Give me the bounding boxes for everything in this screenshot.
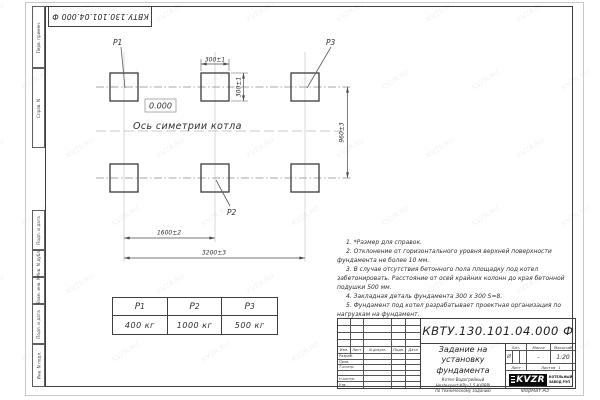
- company-logo-cell: KVZR КОТЕЛЬНЫЙ ЗАВОД РЭП: [506, 371, 575, 388]
- notes-block: 1. *Размер для справок. 2. Отклонение от…: [337, 238, 568, 319]
- column-axis-lines: [124, 52, 305, 262]
- title-block: Изм. Лист N докум. Подп. Дата Разраб. Пр…: [337, 318, 576, 389]
- note-5: 5. Фундамент под котел разрабатывает про…: [337, 301, 568, 319]
- lit-label: Лит.: [506, 344, 527, 350]
- top-stamp: КВТУ.130.101.04.000 Ф: [48, 6, 152, 27]
- foundation-plan: 300±1 300±1 960±3 1600±2 3200±3 P1 P3 P2…: [45, 28, 367, 274]
- mass-value: -: [527, 351, 551, 363]
- title-block-info: Лит. Масса Масштаб И - 1:20 Лист Листов1: [506, 344, 575, 388]
- frame-cell-vzam-inv: Взам. инв. N: [32, 277, 45, 304]
- sheet-label: Лист: [506, 364, 527, 370]
- lit-value: И: [506, 351, 513, 363]
- load-table: P1 P2 P3 400 кг 1000 кг 500 кг: [112, 297, 278, 335]
- company-name: КОТЕЛЬНЫЙ ЗАВОД РЭП: [549, 375, 572, 383]
- note-2: 2. Отклонение от горизонтального уровня …: [337, 247, 568, 265]
- load-value-p2: 1000 кг: [168, 316, 223, 334]
- kvzr-logo: KVZR: [509, 374, 547, 386]
- dim-col-spacing: 1600±2: [157, 230, 181, 237]
- scale-label: Масштаб: [551, 344, 575, 350]
- load-value-p3: 500 кг: [222, 316, 277, 334]
- mass-label: Масса: [527, 344, 551, 350]
- logo-stripes-icon: [511, 376, 515, 384]
- dim-row-spacing: 960±3: [339, 122, 346, 142]
- frame-cell-sprav-n: Справ. N: [32, 68, 45, 148]
- symmetry-axis-caption: Ось симетрии котла: [133, 121, 242, 132]
- frame-cell-podp-data-1: Подп. и дата: [32, 210, 45, 250]
- scale-value: 1:20: [551, 351, 575, 363]
- note-3: 3. В случае отсутствия бетонного пола пл…: [337, 265, 568, 292]
- frame-cell-perv-primen: Перв. примен.: [32, 6, 45, 68]
- load-table-header-p1: P1: [113, 298, 168, 316]
- dim-pad-width: 300±1: [205, 57, 225, 64]
- format-label: Формат А3: [495, 388, 575, 394]
- foundation-pads: [110, 73, 319, 192]
- doc-title: Задание на установку фундамента: [421, 345, 505, 376]
- doc-subtitle: Котел Водогрейный Heatexpert-КВр-1,5-К(Р…: [421, 377, 505, 393]
- drawing-sheet: KVZR.RUKVZR.RUKVZR.RUKVZR.RUKVZR.RUKVZR.…: [0, 0, 600, 400]
- elevation-value: 0.000: [149, 102, 172, 111]
- approval-header-row: Изм. Лист N докум. Подп. Дата: [338, 347, 420, 354]
- load-table-header-p3: P3: [222, 298, 277, 316]
- load-table-header-p2: P2: [168, 298, 223, 316]
- top-stamp-number: КВТУ.130.101.04.000 Ф: [52, 12, 149, 21]
- sheets-total: Листов1: [527, 364, 575, 370]
- load-value-p1: 400 кг: [113, 316, 168, 334]
- title-block-approval-table: Изм. Лист N докум. Подп. Дата Разраб. Пр…: [338, 319, 421, 388]
- note-1: 1. *Размер для справок.: [337, 238, 568, 247]
- dim-pad-height: 300±1: [236, 77, 243, 97]
- note-4: 4. Закладная деталь фундамента 300 x 300…: [337, 292, 568, 301]
- dim-total-span: 3200±3: [202, 250, 226, 257]
- frame-cell-inv-dubl: Инв. N дубл.: [32, 250, 45, 277]
- label-p2: P2: [227, 208, 237, 217]
- frame-cell-podp-data-2: Подп. и дата: [32, 304, 45, 344]
- doc-number: КВТУ.130.101.04.000 Ф: [421, 319, 575, 344]
- approval-row-utv: Утв.: [338, 382, 420, 388]
- frame-cell-inv-podl: Инв. N подл.: [32, 344, 45, 387]
- label-p1: P1: [113, 38, 122, 47]
- label-p3: P3: [326, 38, 336, 47]
- doc-title-cell: Задание на установку фундамента Котел Во…: [421, 344, 506, 388]
